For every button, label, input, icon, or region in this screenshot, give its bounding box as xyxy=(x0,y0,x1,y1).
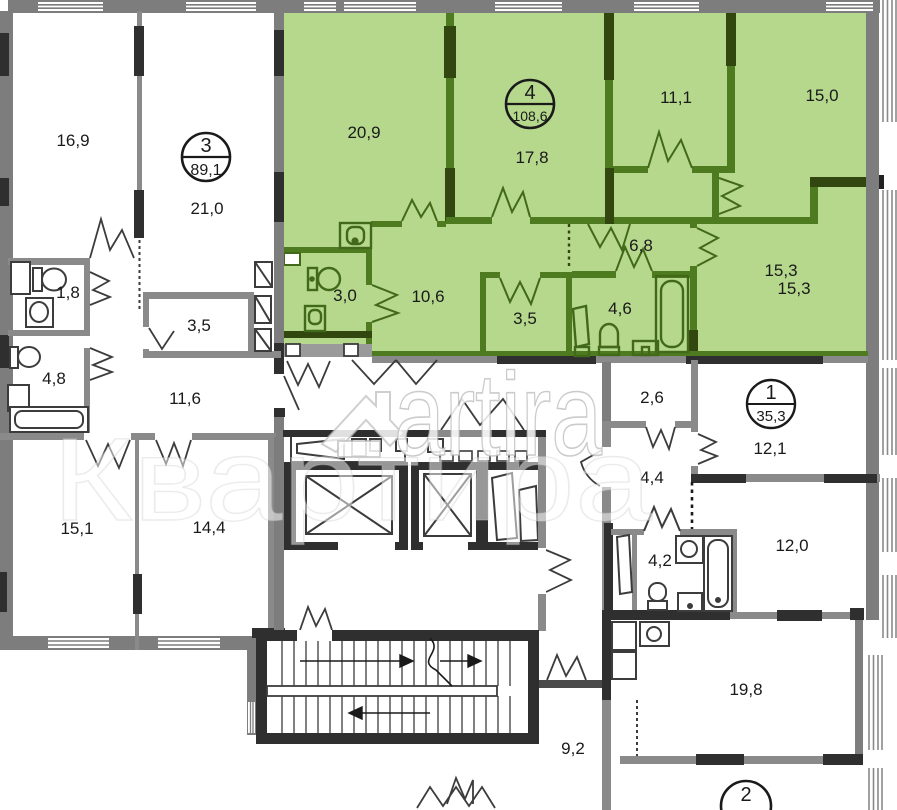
svg-text:1: 1 xyxy=(765,382,776,404)
svg-text:6,8: 6,8 xyxy=(629,236,653,255)
svg-text:2,6: 2,6 xyxy=(640,388,664,407)
svg-text:16,9: 16,9 xyxy=(56,131,89,150)
svg-text:4: 4 xyxy=(524,82,535,104)
svg-text:20,9: 20,9 xyxy=(347,123,380,142)
svg-text:12,0: 12,0 xyxy=(775,536,808,555)
svg-text:19,8: 19,8 xyxy=(729,680,762,699)
svg-text:11,6: 11,6 xyxy=(169,389,201,408)
svg-text:4,6: 4,6 xyxy=(608,299,632,318)
svg-text:3,0: 3,0 xyxy=(333,286,357,305)
svg-text:15,0: 15,0 xyxy=(805,86,838,105)
svg-text:3: 3 xyxy=(200,135,211,157)
svg-text:89,1: 89,1 xyxy=(190,162,221,179)
svg-text:108,6: 108,6 xyxy=(512,108,547,124)
svg-text:15,3: 15,3 xyxy=(764,261,797,280)
svg-text:11,1: 11,1 xyxy=(660,88,692,107)
svg-text:21,0: 21,0 xyxy=(190,199,223,218)
svg-text:9,2: 9,2 xyxy=(561,739,585,758)
svg-text:15,3: 15,3 xyxy=(777,279,810,298)
svg-text:Квартира: Квартира xyxy=(52,414,652,546)
svg-text:2: 2 xyxy=(740,784,751,806)
svg-text:35,3: 35,3 xyxy=(756,408,785,425)
svg-text:4,8: 4,8 xyxy=(42,369,66,388)
svg-text:10,6: 10,6 xyxy=(411,287,444,306)
svg-text:1,8: 1,8 xyxy=(56,283,80,302)
svg-text:3,5: 3,5 xyxy=(513,309,537,328)
svg-text:3,5: 3,5 xyxy=(187,316,211,335)
svg-text:17,8: 17,8 xyxy=(515,148,548,167)
svg-text:12,1: 12,1 xyxy=(753,439,786,458)
svg-text:4,2: 4,2 xyxy=(648,551,672,570)
